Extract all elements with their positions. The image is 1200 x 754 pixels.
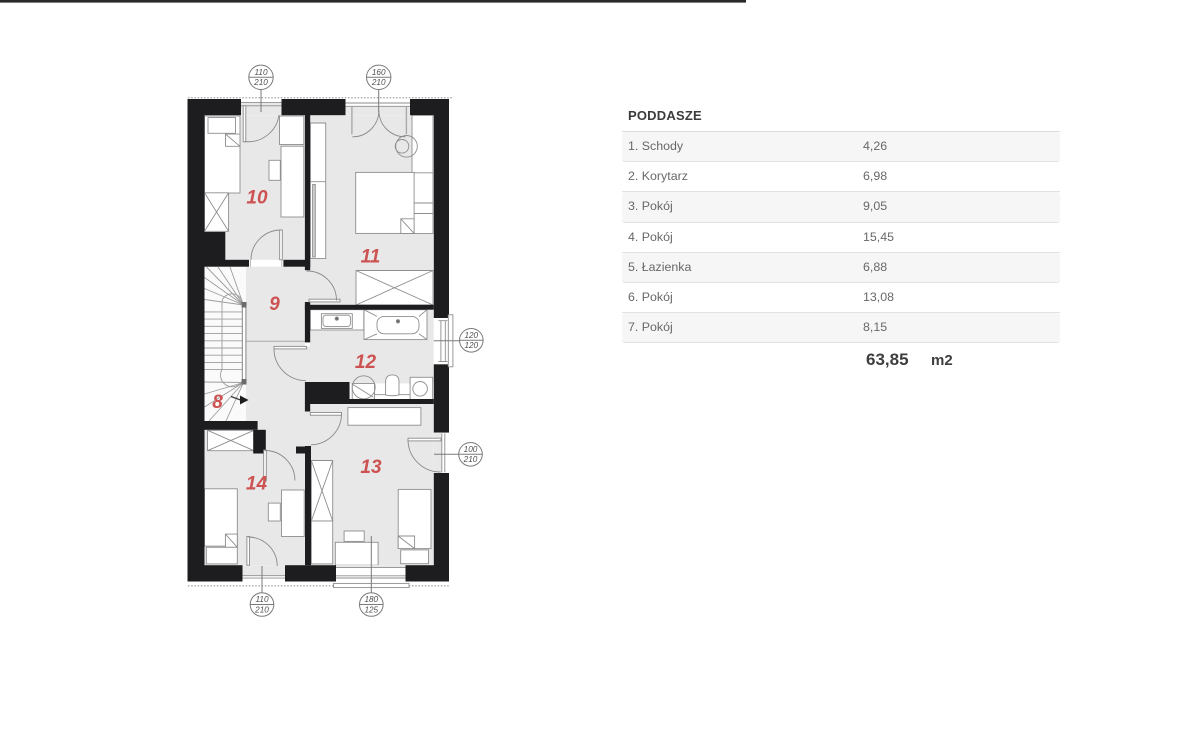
- svg-text:180: 180: [364, 595, 378, 604]
- svg-text:110: 110: [254, 68, 267, 77]
- svg-text:14: 14: [246, 474, 268, 495]
- svg-text:210: 210: [463, 455, 478, 464]
- svg-text:120: 120: [464, 341, 478, 350]
- svg-text:210: 210: [371, 78, 386, 87]
- svg-text:160: 160: [372, 68, 386, 77]
- svg-text:120: 120: [464, 331, 478, 340]
- svg-text:125: 125: [364, 605, 378, 614]
- svg-text:13: 13: [360, 457, 382, 478]
- svg-text:9: 9: [269, 294, 280, 315]
- svg-text:8: 8: [212, 392, 223, 413]
- svg-text:210: 210: [253, 78, 268, 87]
- svg-text:10: 10: [246, 188, 268, 209]
- svg-text:12: 12: [355, 352, 377, 373]
- svg-text:110: 110: [255, 595, 268, 604]
- svg-text:100: 100: [464, 445, 478, 454]
- svg-text:210: 210: [254, 605, 269, 614]
- svg-text:11: 11: [361, 247, 381, 268]
